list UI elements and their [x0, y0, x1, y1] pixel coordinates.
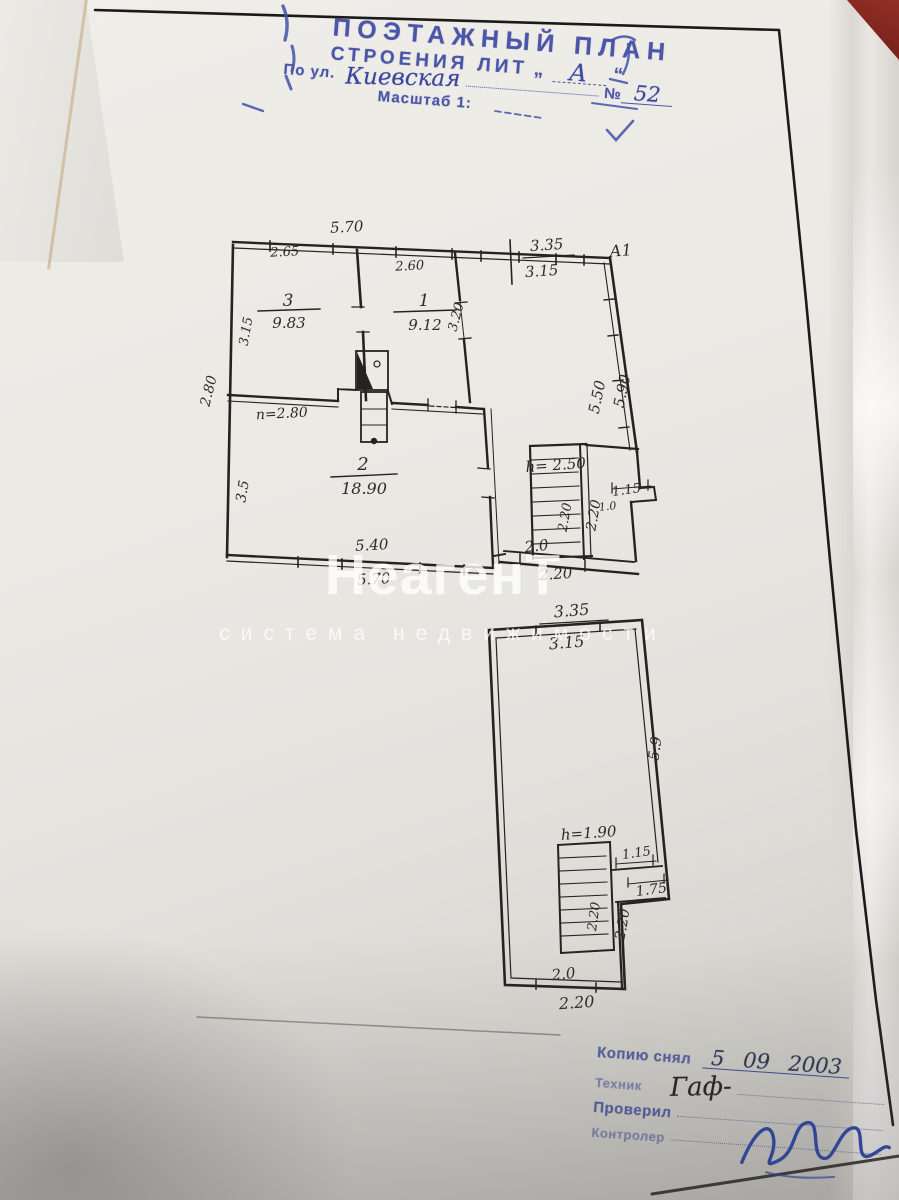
room3-number: 3 [283, 291, 294, 311]
dim-left-out: 2.80 [197, 374, 220, 409]
scanned-floor-plan-page: 5.70 2.65 2.60 3.35 3.15 А1 3 9.83 1 9.1… [0, 0, 899, 1200]
dim-left-in: 3.15 [237, 316, 257, 347]
dim-l-side-out: 2.20 [612, 907, 633, 942]
checked-signature [730, 1104, 895, 1195]
dim-l-right: 5.9 [644, 735, 665, 762]
room1-area: 9.12 [408, 316, 441, 334]
dotted-leader [466, 86, 598, 97]
street-value: Киевская [345, 67, 461, 88]
number-sign: № [604, 85, 623, 103]
dim-l-step-bottom: 1.75 [635, 880, 668, 900]
dim-porch-in: 2.0 [523, 536, 550, 557]
dim-diag-in: 5.50 [585, 378, 610, 415]
room2-area: 18.90 [341, 479, 387, 498]
l-stairs-height-note: h=1.90 [560, 822, 617, 844]
ceiling-height-note: п=2.80 [255, 405, 308, 424]
dim-l-top-in: 3.15 [548, 632, 585, 654]
dim-step-top: 1.15 [611, 481, 642, 500]
dotted-leader [737, 1094, 884, 1105]
corner-label: А1 [608, 240, 633, 261]
lower-floor-plan [489, 620, 669, 992]
dim-bottom-out: 5.70 [357, 569, 392, 589]
dim-l-bottom-in: 2.0 [550, 964, 577, 985]
dim-l-bottom-out: 2.20 [557, 992, 595, 1014]
dim-right-top-in: 3.15 [524, 261, 559, 281]
dim-step-bottom: 1.0 [598, 499, 617, 514]
room3-area: 9.83 [272, 314, 305, 332]
technician-label: Техник [595, 1075, 643, 1093]
copy-label: Копию снял [597, 1044, 692, 1068]
plan-drawing: 5.70 2.65 2.60 3.35 3.15 А1 3 9.83 1 9.1… [0, 0, 899, 1200]
quote-open: „ [533, 59, 548, 82]
checked-label: Проверил [593, 1099, 672, 1121]
dim-right-top-out: 3.35 [529, 235, 564, 255]
controller-label: Контролер [591, 1125, 665, 1145]
room2-number: 2 [356, 454, 368, 475]
footer-stamp: Копию снял 5 09 2003 Техник Гаф- Провери… [590, 1040, 891, 1169]
dim-left-low: 3.5 [233, 479, 253, 504]
dim-bottom-in: 5.40 [355, 535, 390, 555]
liter-value: А [552, 61, 608, 86]
stairs-height-note: h= 2.50 [525, 454, 587, 476]
dim-top: 5.70 [330, 217, 365, 237]
dim-seg-left: 2.65 [269, 244, 300, 261]
dim-seg-mid: 2.60 [394, 258, 425, 275]
dim-stairs-run: 2.20 [555, 502, 575, 534]
room1-number: 1 [419, 291, 430, 311]
dim-porch-out: 2.20 [537, 564, 573, 584]
dim-room1-right: 3.20 [446, 301, 468, 333]
street-label: По ул. [283, 61, 336, 82]
technician-signature: Гаф- [670, 1077, 732, 1098]
dim-l-step-top: 1.15 [621, 844, 652, 863]
dim-l-stairs-run: 2.20 [585, 901, 604, 933]
dim-l-top-out: 3.35 [553, 600, 590, 622]
frame-border [95, 10, 899, 1194]
house-number: 52 [621, 83, 673, 107]
